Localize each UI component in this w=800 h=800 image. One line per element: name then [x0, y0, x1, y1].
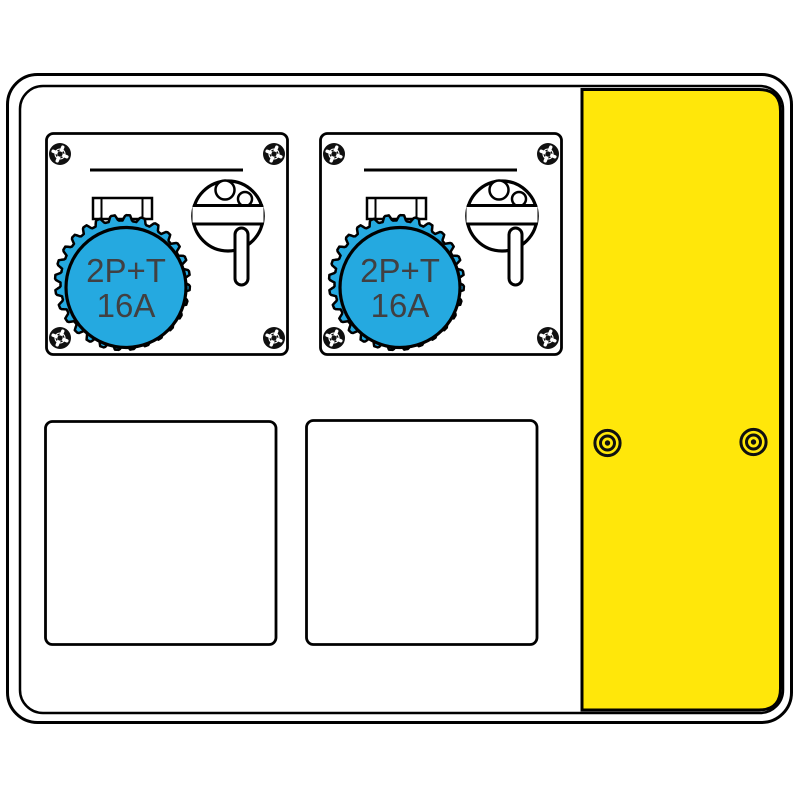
- blank-window-cutout-left: [46, 422, 277, 645]
- socket-hinge-tab: [367, 198, 426, 219]
- socket-rating-line2: 16A: [97, 287, 156, 324]
- plate-screw-icon: [49, 143, 71, 165]
- switch-lever: [235, 228, 248, 285]
- socket-module-1: 2P+T 16A: [47, 134, 288, 355]
- enclosure-drawing-canvas: 2P+T 16A 2P+T 16A: [0, 0, 800, 800]
- plate-screw-icon: [263, 327, 285, 349]
- socket-rating-line1: 2P+T: [360, 252, 440, 289]
- plate-screw-icon: [49, 327, 71, 349]
- switch-detail-circle: [216, 181, 235, 200]
- socket-rating-line2: 16A: [371, 287, 430, 324]
- plate-screw-icon: [263, 143, 285, 165]
- socket-module-2: 2P+T 16A: [321, 134, 562, 355]
- switch-detail-circle: [238, 192, 252, 206]
- switch-slot-band: [191, 206, 265, 225]
- plate-screw-icon: [323, 143, 345, 165]
- plate-screw-icon: [323, 327, 345, 349]
- switch-slot-band: [465, 206, 539, 225]
- plate-screw-icon: [537, 327, 559, 349]
- switch-detail-circle: [512, 192, 526, 206]
- enclosure-drawing: 2P+T 16A 2P+T 16A: [0, 0, 800, 800]
- yellow-side-panel: [582, 90, 781, 711]
- switch-detail-circle: [490, 181, 509, 200]
- switch-lever: [509, 228, 522, 285]
- socket-hinge-tab: [93, 198, 152, 219]
- socket-rating-line1: 2P+T: [86, 252, 166, 289]
- blank-window-cutout-right: [307, 421, 538, 645]
- plate-screw-icon: [537, 143, 559, 165]
